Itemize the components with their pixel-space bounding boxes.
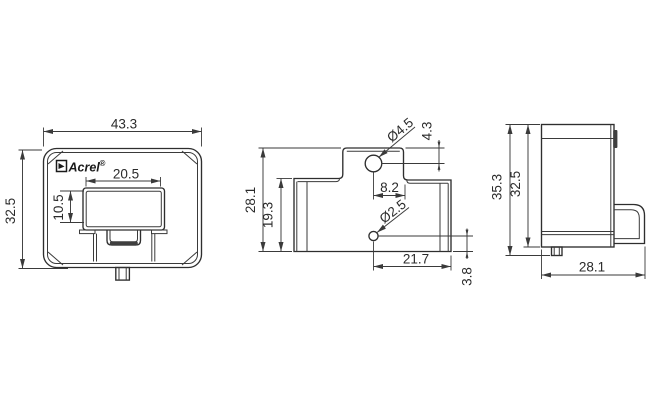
dim-hole-edge-dist: 8.2 xyxy=(374,173,406,200)
leader-small-hole: Ø2.5 xyxy=(377,197,409,233)
dim-side-depth-label: 28.1 xyxy=(579,260,605,275)
front-view-dimensions: 43.3 32.5 20.5 10.5 xyxy=(3,117,202,269)
dim-hole-right-span-label: 21.7 xyxy=(403,252,429,267)
small-hole-dia-label: Ø2.5 xyxy=(377,197,409,227)
front-drop-lines xyxy=(94,234,155,262)
side-body-outer xyxy=(542,125,615,248)
dim-top-inner-height: 19.3 xyxy=(261,179,293,252)
side-view-dimensions: 35.3 32.5 28.1 xyxy=(490,125,646,280)
front-latch xyxy=(107,230,141,246)
dim-window-width-label: 20.5 xyxy=(113,167,139,182)
brand-name: Acrel xyxy=(68,161,101,175)
registered-mark: ® xyxy=(100,159,106,168)
side-bottom-pin xyxy=(552,247,563,256)
top-inner-lines xyxy=(297,151,448,251)
dim-window-height: 10.5 xyxy=(51,191,84,223)
logo-glyph-icon xyxy=(59,163,65,169)
side-clip xyxy=(614,205,645,244)
technical-drawing: Acrel ® 43.3 32.5 20.5 xyxy=(0,0,657,400)
front-window-outer xyxy=(83,188,165,230)
dim-side-depth: 28.1 xyxy=(542,247,646,280)
dim-side-body-height: 32.5 xyxy=(508,125,540,248)
acrel-logo: Acrel ® xyxy=(57,159,106,175)
front-window-inner xyxy=(86,191,161,227)
dim-hole-bottom-offset-label: 3.8 xyxy=(460,267,475,286)
dim-top-overall-height: 28.1 xyxy=(243,148,341,252)
dim-front-height-label: 32.5 xyxy=(3,198,18,224)
dim-hole-right-span: 21.7 xyxy=(374,242,452,271)
dim-hole-edge-dist-label: 8.2 xyxy=(380,180,399,195)
mounting-hole-small xyxy=(369,231,378,240)
front-view: Acrel ® 43.3 32.5 20.5 xyxy=(3,117,202,281)
dim-hole-top-offset-label: 4.3 xyxy=(420,122,435,141)
dim-top-inner-label: 19.3 xyxy=(261,202,276,228)
side-view: 35.3 32.5 28.1 xyxy=(490,125,646,280)
side-view-outline xyxy=(542,125,645,256)
dim-top-overall-label: 28.1 xyxy=(243,187,258,213)
side-top-tab xyxy=(613,130,617,148)
dim-window-height-label: 10.5 xyxy=(51,194,66,220)
dim-side-overall-label: 35.3 xyxy=(490,174,505,200)
dim-front-width: 43.3 xyxy=(44,117,202,147)
mounting-hole-large xyxy=(365,155,382,172)
front-bottom-pin xyxy=(116,268,130,281)
dim-side-body-label: 32.5 xyxy=(508,171,523,197)
large-hole-dia-label: Ø4.5 xyxy=(384,115,416,145)
dim-front-width-label: 43.3 xyxy=(111,117,137,132)
top-view: 28.1 19.3 Ø4.5 4.3 xyxy=(243,115,475,286)
